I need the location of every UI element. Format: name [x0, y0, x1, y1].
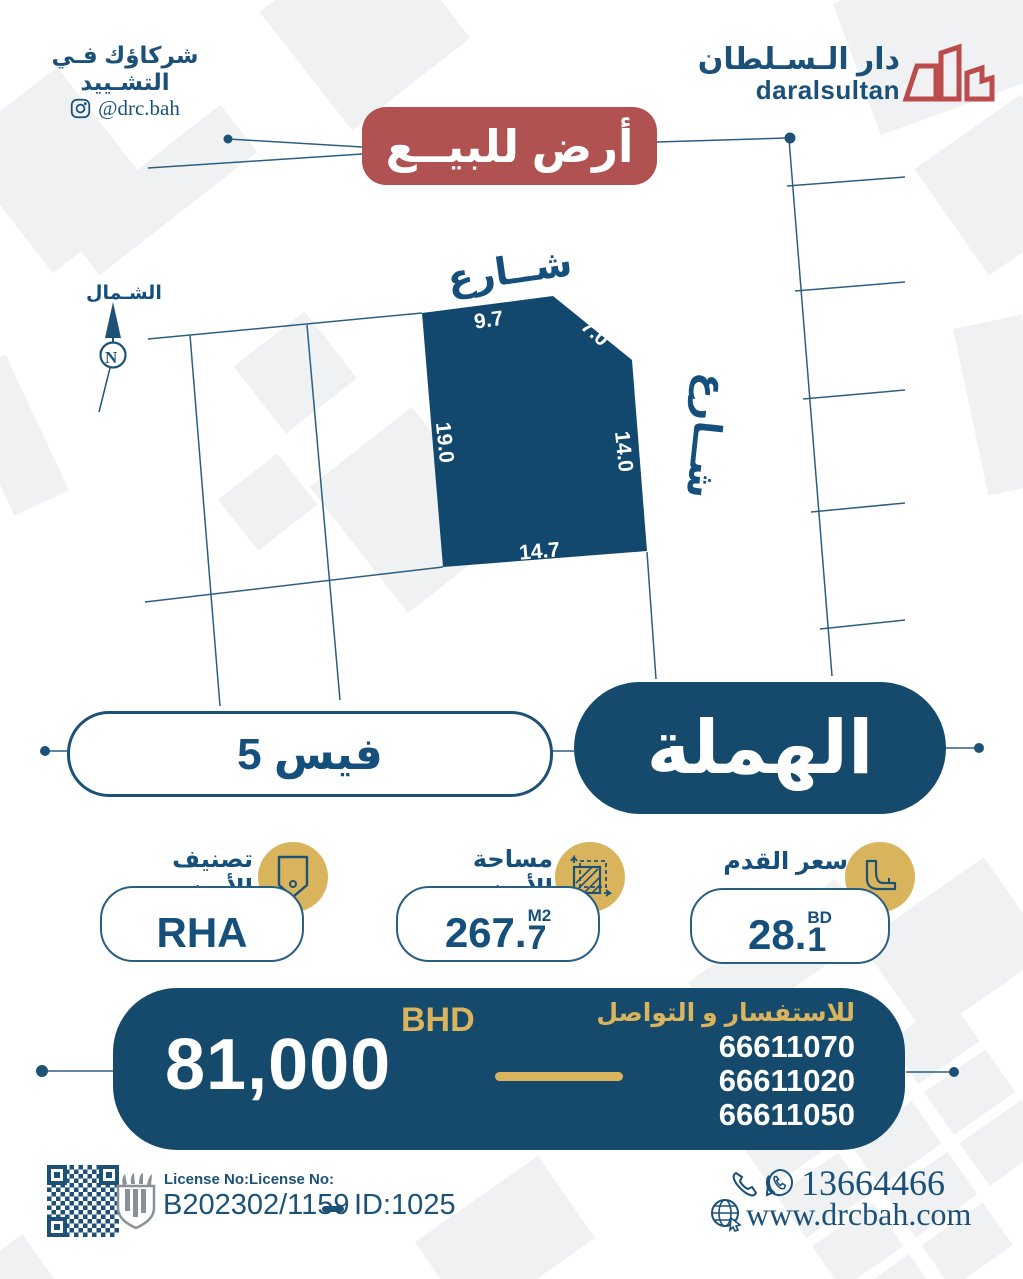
tagline-text: شركاؤك فـي التشـييد	[30, 42, 220, 96]
contact-phone-3[interactable]: 66611050	[596, 1098, 855, 1132]
price-banner: BHD 81,000 للاستفسار و التواصل 66611070 …	[113, 988, 905, 1150]
north-indicator: الشـمال N	[86, 283, 162, 412]
north-letter: N	[105, 348, 118, 367]
area-value-dec: 7	[528, 923, 547, 954]
area-name-label: الهملة	[647, 705, 874, 791]
stat-price-per-foot-label: سعر القدم	[690, 847, 848, 876]
instagram-icon	[70, 98, 91, 119]
instagram-handle[interactable]: @drc.bah	[30, 96, 220, 121]
area-name-pill[interactable]: الهملة	[574, 682, 946, 814]
street-label-top: شــارع	[445, 242, 575, 301]
brand-block: دار الـسـلطان daralsultan	[698, 44, 900, 104]
header-tagline-block: شركاؤك فـي التشـييد @drc.bah	[30, 42, 220, 121]
instagram-handle-text: @drc.bah	[98, 96, 180, 121]
price-per-foot-value-pill: 28.BD1	[690, 888, 890, 964]
brand-name-english: daralsultan	[698, 76, 900, 105]
block-pill-label: فيس 5	[237, 729, 383, 780]
currency-label: BHD	[401, 1001, 475, 1040]
stat-price-per-foot: سعر القدم 28.BD1	[690, 845, 920, 957]
dim-left: 19.0	[431, 421, 458, 464]
contact-phone-2[interactable]: 66611020	[596, 1064, 855, 1098]
for-sale-badge-label: أرض للبيــع	[386, 120, 634, 173]
for-sale-badge: أرض للبيــع	[362, 107, 657, 185]
listing-id: ID:1025	[354, 1189, 456, 1222]
price-amount: 81,000	[165, 1024, 391, 1106]
stat-area: مساحة الأرض 267.M27	[396, 843, 626, 955]
contact-label: للاستفسار و التواصل	[596, 998, 855, 1028]
footer-website[interactable]: www.drcbah.com	[746, 1196, 971, 1233]
contact-phone-1[interactable]: 66611070	[596, 1030, 855, 1064]
authority-crest-icon	[114, 1172, 158, 1232]
street-label-right: شــارع	[678, 371, 733, 500]
license-label: License No:License No:	[164, 1171, 334, 1188]
block-pill[interactable]: فيس 5	[67, 711, 553, 797]
qr-code	[47, 1165, 119, 1237]
phone-icon	[731, 1170, 759, 1198]
license-number: B202302/1159	[163, 1189, 350, 1222]
dim-right: 14.0	[610, 430, 637, 473]
price-per-foot-dec: 1	[807, 925, 826, 956]
footer-dash	[322, 1206, 344, 1212]
stat-classification: تصنيف الأرض RHA	[100, 843, 330, 955]
website-globe-icon	[709, 1197, 745, 1233]
north-label: الشـمال	[86, 283, 162, 304]
area-value-int: 267.	[445, 912, 527, 954]
whatsapp-icon	[764, 1167, 795, 1198]
classification-value-pill: RHA	[100, 886, 304, 962]
classification-value: RHA	[157, 912, 248, 954]
price-per-foot-int: 28.	[748, 914, 806, 956]
contact-block: للاستفسار و التواصل 66611070 66611020 66…	[596, 998, 855, 1132]
brand-name-arabic: دار الـسـلطان	[698, 44, 900, 76]
dim-top: 9.7	[473, 307, 505, 334]
area-value-pill: 267.M27	[396, 886, 600, 962]
poster: 9.7 7.0 19.0 14.0 14.7 شــارع شــارع الش…	[0, 0, 1023, 1279]
dim-bottom: 14.7	[518, 538, 561, 564]
